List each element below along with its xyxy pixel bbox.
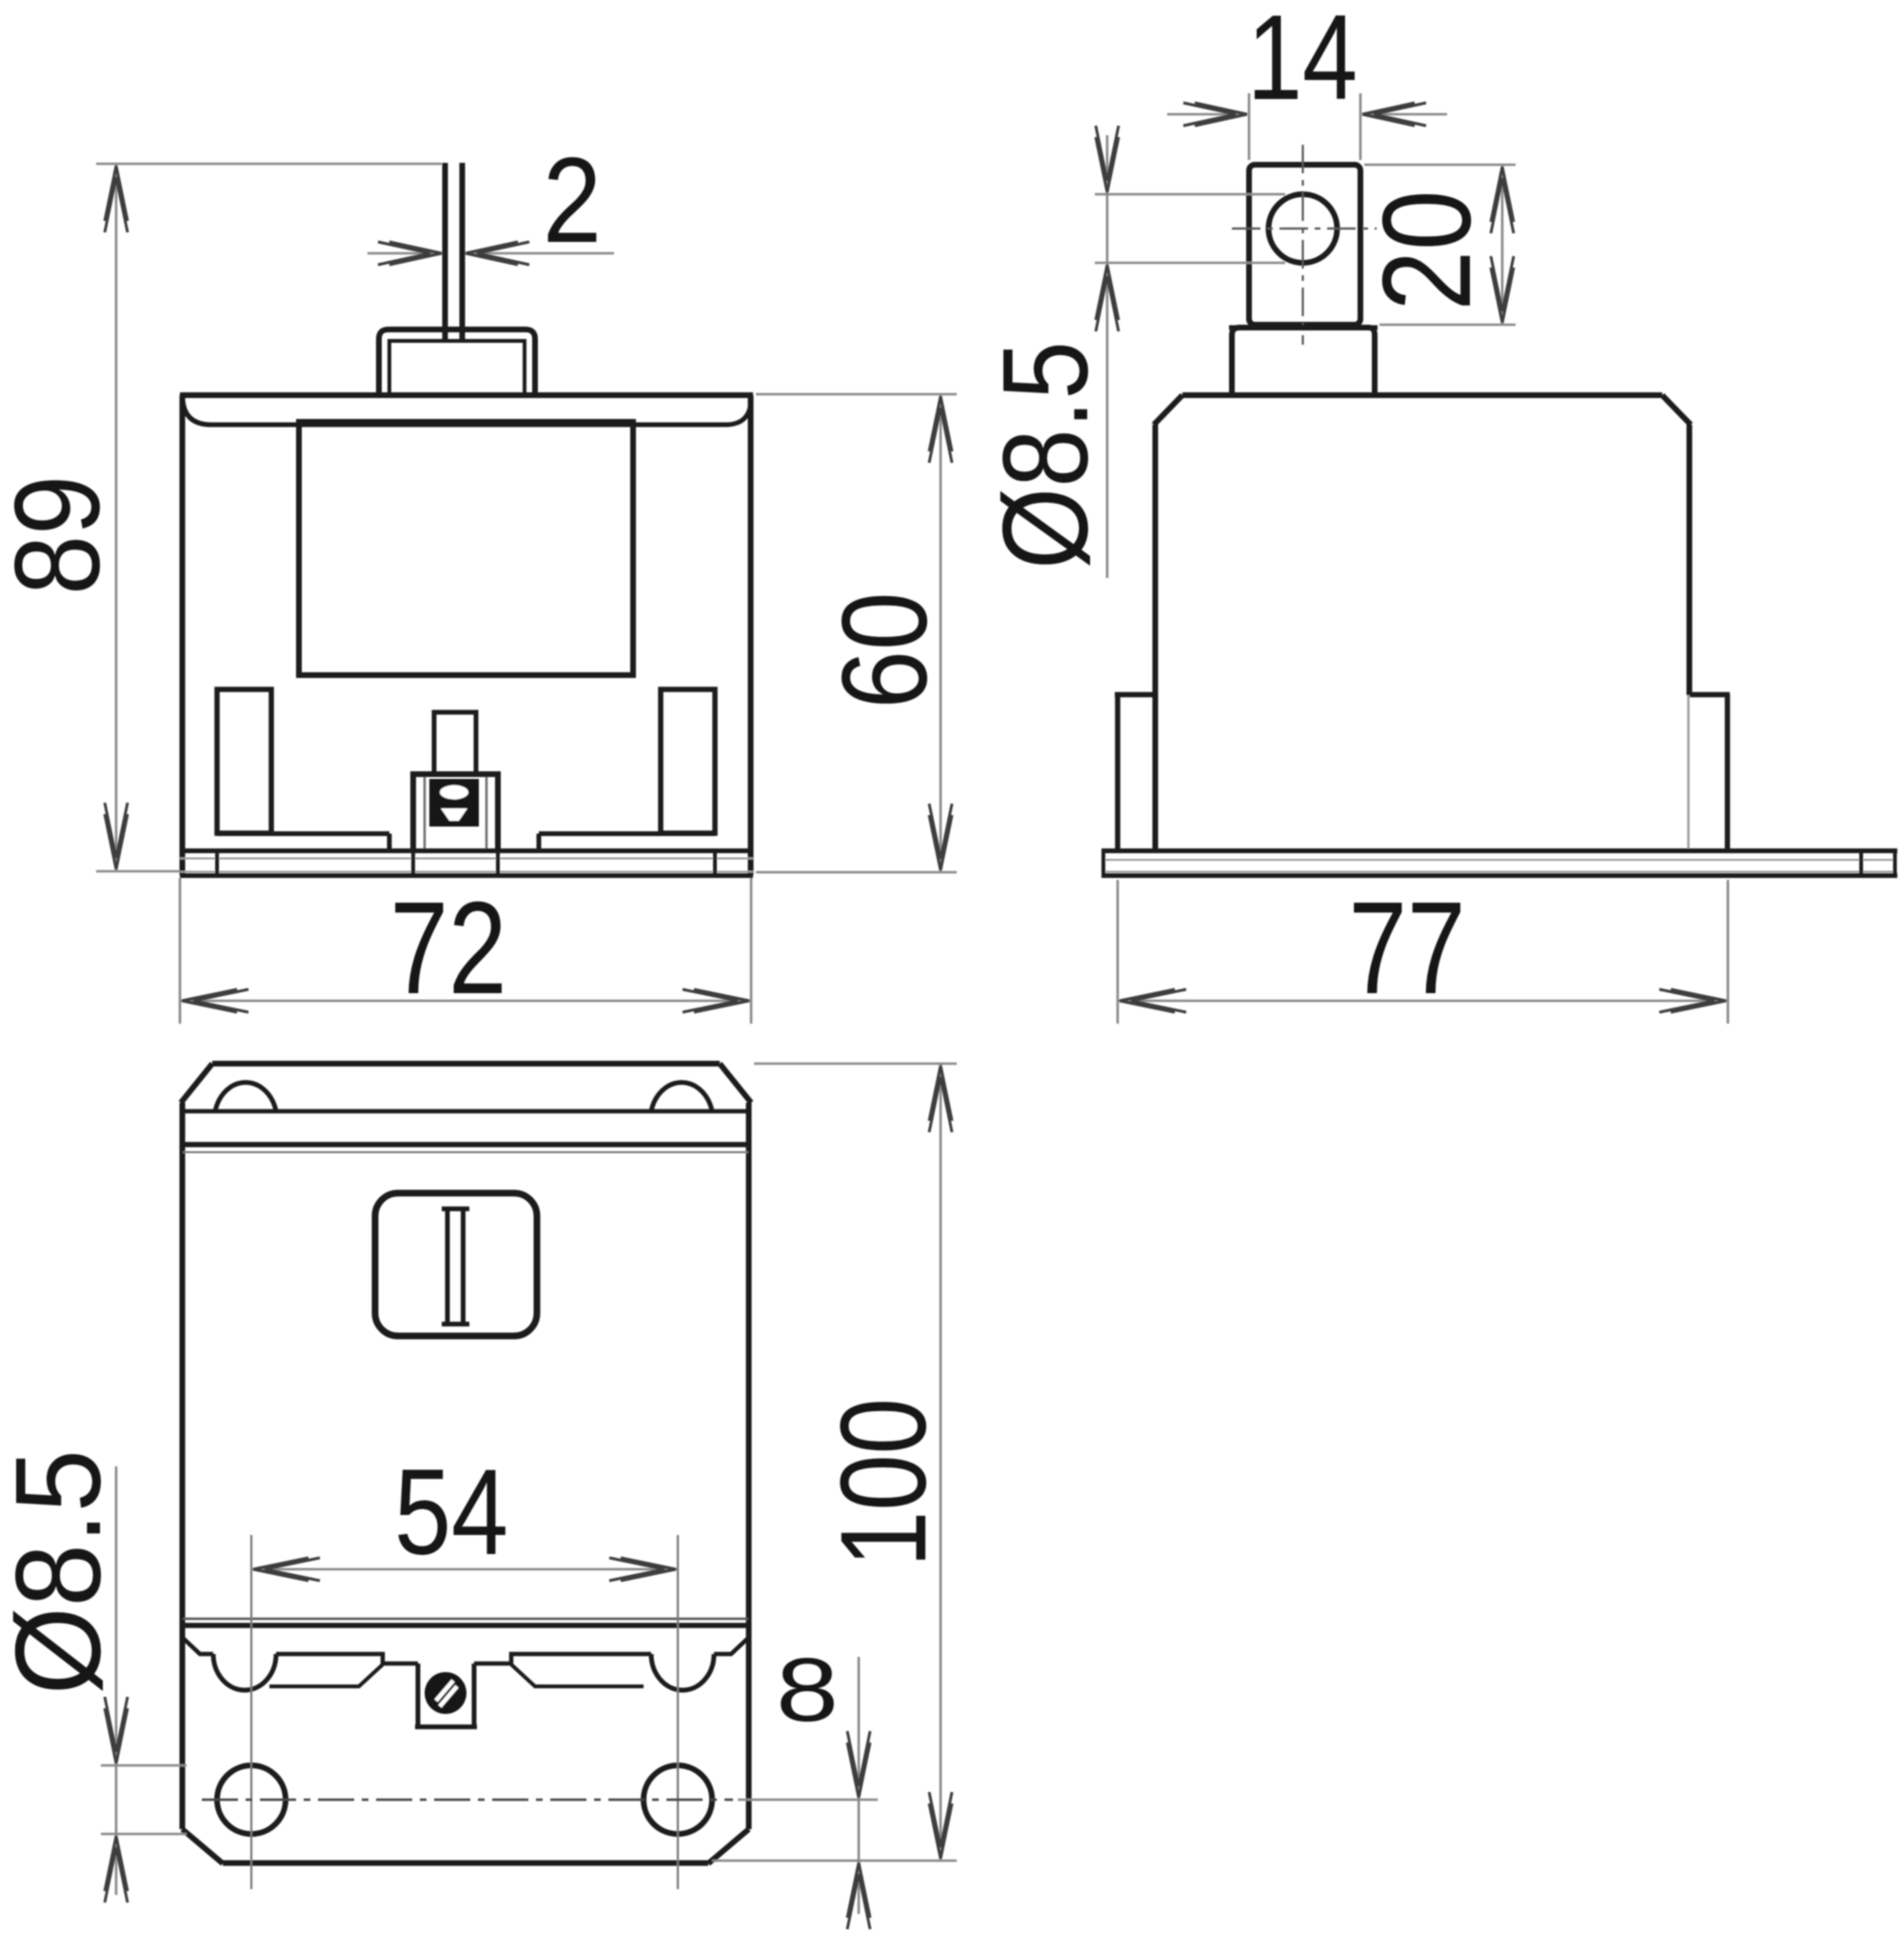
svg-text:54: 54: [394, 1445, 508, 1581]
svg-text:14: 14: [1247, 0, 1358, 125]
svg-text:60: 60: [817, 592, 952, 709]
svg-text:100: 100: [816, 1398, 952, 1567]
svg-text:Ø8.5: Ø8.5: [978, 341, 1113, 569]
svg-text:8: 8: [776, 1640, 839, 1741]
svg-text:72: 72: [390, 875, 507, 1022]
svg-text:77: 77: [1349, 875, 1466, 1022]
svg-text:89: 89: [0, 475, 125, 595]
svg-text:Ø8.5: Ø8.5: [0, 1449, 126, 1695]
svg-text:2: 2: [543, 132, 602, 268]
svg-text:20: 20: [1357, 190, 1497, 311]
